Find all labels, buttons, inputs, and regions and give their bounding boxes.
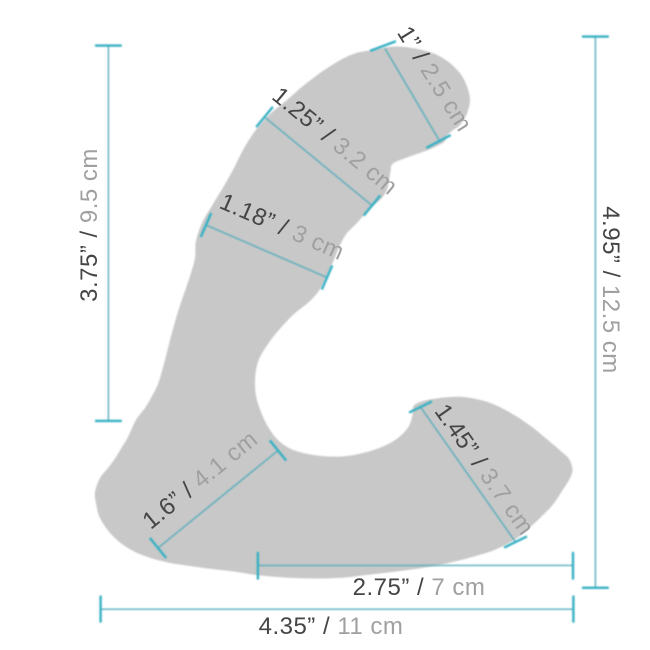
svg-text:4.95” / 12.5 cm: 4.95” / 12.5 cm <box>597 206 624 374</box>
svg-text:4.35” / 11 cm: 4.35” / 11 cm <box>259 613 404 640</box>
svg-text:3.75” / 9.5 cm: 3.75” / 9.5 cm <box>76 148 103 302</box>
svg-text:2.75” / 7 cm: 2.75” / 7 cm <box>353 574 486 601</box>
